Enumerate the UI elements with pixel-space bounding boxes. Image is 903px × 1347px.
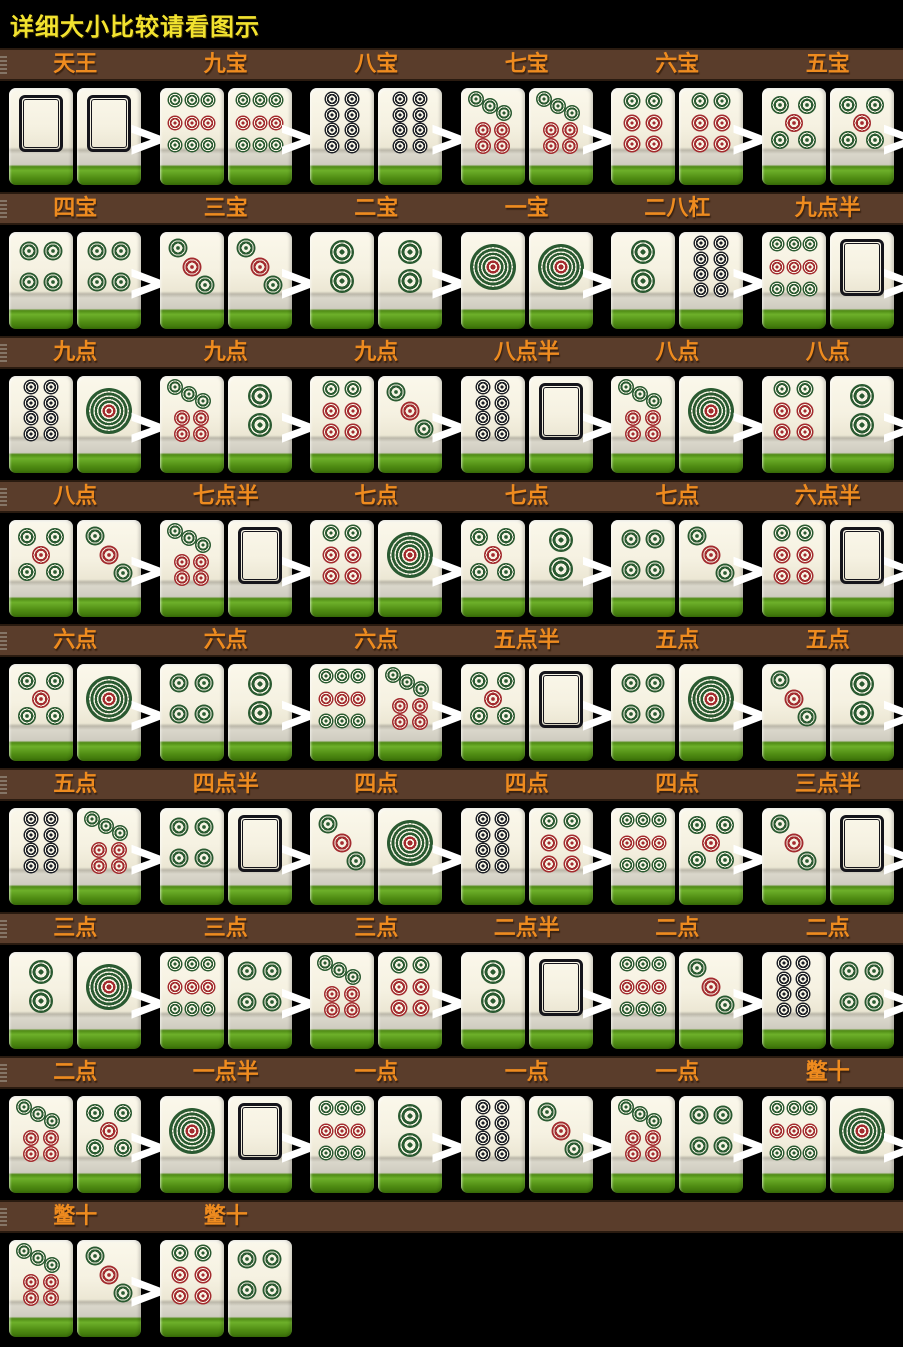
dot: [24, 411, 39, 426]
dot: [691, 135, 708, 152]
greater-than-separator: >: [880, 403, 903, 450]
blank-frame: [840, 239, 884, 296]
rank-header-bar: 三点三点三点二点半二点二点: [0, 912, 903, 945]
tile-row: >>>>>>: [0, 801, 903, 912]
dot: [168, 238, 187, 257]
tile-pair: [160, 1096, 292, 1200]
dot: [652, 957, 667, 972]
dot: [786, 237, 801, 252]
dot: [319, 814, 338, 833]
dot: [345, 525, 362, 542]
tile-face: [163, 379, 221, 442]
blank-frame-inner: [23, 99, 59, 148]
dot: [398, 269, 422, 293]
tile-pair: [9, 232, 141, 336]
dot: [248, 384, 272, 408]
tile-face: [163, 1243, 221, 1306]
pair-cell: >: [753, 952, 903, 1056]
pair-cell: >: [452, 664, 603, 768]
tile-pair: [461, 520, 593, 624]
tile-face: [765, 523, 823, 586]
tile-face: [614, 523, 672, 586]
dot: [262, 1250, 281, 1269]
dot: [475, 1115, 490, 1130]
dot: [774, 381, 791, 398]
dot: [713, 267, 728, 282]
tile-dot-8: [461, 808, 525, 905]
dot: [645, 1146, 661, 1162]
rank-label: 三点: [0, 918, 151, 940]
pair-cell: >: [753, 664, 903, 768]
tile-pair: [160, 664, 292, 768]
rank-label: 七宝: [452, 54, 603, 76]
dot: [351, 1101, 366, 1116]
dot: [646, 393, 662, 409]
dot: [184, 1001, 199, 1016]
dot: [170, 674, 189, 693]
tile-dot-5: [461, 520, 525, 617]
dot: [335, 1123, 350, 1138]
dot: [168, 1001, 183, 1016]
tile-face: [765, 235, 823, 298]
dot: [335, 713, 350, 728]
dot: [43, 395, 58, 410]
dot: [652, 835, 667, 850]
dot: [325, 138, 340, 153]
dot: [322, 546, 339, 563]
tile-dot-9: [762, 1096, 826, 1193]
dot: [636, 857, 651, 872]
dot: [497, 563, 515, 581]
dot: [495, 395, 510, 410]
dot: [475, 426, 490, 441]
dot: [551, 1121, 570, 1140]
greater-than-separator: >: [880, 115, 903, 162]
dot: [322, 423, 339, 440]
tile-dot-7: [9, 1240, 73, 1337]
rank-label: 二点半: [452, 918, 603, 940]
dot: [318, 1123, 333, 1138]
dot: [770, 259, 785, 274]
dot: [325, 107, 340, 122]
dot: [796, 987, 811, 1002]
rank-section: 天王九宝八宝七宝六宝五宝>>>>>>: [0, 48, 903, 192]
tile-pair: [9, 808, 141, 912]
dot: [24, 827, 39, 842]
dot: [786, 1123, 801, 1138]
pair-cell: >: [602, 376, 753, 480]
dot: [23, 1146, 39, 1162]
rank-label: 六点半: [753, 486, 903, 508]
dot: [351, 713, 366, 728]
dot: [200, 957, 215, 972]
pair-cell: >: [301, 808, 452, 912]
dot: [100, 1265, 119, 1284]
pair-cell: >: [753, 520, 903, 624]
greater-than-separator: >: [880, 691, 903, 738]
dot: [786, 281, 801, 296]
rank-label: 一点半: [151, 1062, 302, 1084]
dot: [393, 138, 408, 153]
rank-label: 五宝: [753, 54, 903, 76]
greater-than-separator: >: [880, 259, 903, 306]
dot: [111, 842, 127, 858]
tile-dot-2: [310, 232, 374, 329]
tile-dot-4: [9, 232, 73, 329]
dot: [543, 138, 559, 154]
tile-dot-8: [9, 808, 73, 905]
dot: [248, 413, 272, 437]
tile-pair: [762, 520, 894, 624]
rank-section: 四宝三宝二宝一宝二八杠九点半>>>>>>: [0, 192, 903, 336]
tile-face: [12, 667, 70, 730]
dot: [541, 855, 558, 872]
dot: [236, 93, 251, 108]
dot: [631, 240, 655, 264]
dot-big: [86, 676, 132, 722]
dot: [172, 1245, 189, 1262]
dot: [774, 402, 791, 419]
dot: [562, 122, 578, 138]
tile-face: [163, 955, 221, 1018]
pair-cell: >: [0, 520, 151, 624]
dot: [398, 1133, 422, 1157]
dot: [393, 123, 408, 138]
dot: [646, 530, 665, 549]
tile-dot-8: [762, 952, 826, 1049]
dot: [194, 704, 213, 723]
blank-frame-inner: [543, 963, 579, 1012]
dot: [86, 526, 105, 545]
dot: [475, 1146, 490, 1161]
dot: [184, 957, 199, 972]
dot: [32, 690, 50, 708]
dot: [784, 689, 803, 708]
dot-big: [169, 1108, 215, 1154]
dot: [322, 381, 339, 398]
dot: [86, 1104, 104, 1122]
tile-face: [313, 667, 371, 730]
dot: [193, 410, 209, 426]
rank-section: 二点一点半一点一点一点鳖十>>>>>>: [0, 1056, 903, 1200]
dot: [785, 114, 803, 132]
dot: [484, 690, 502, 708]
dot: [168, 93, 183, 108]
tile-pair: [611, 376, 743, 480]
dot: [625, 1130, 641, 1146]
dot: [802, 237, 817, 252]
dot: [193, 426, 209, 442]
dot: [43, 380, 58, 395]
dot: [390, 978, 407, 995]
pair-cell: >: [602, 88, 753, 192]
tile-row: >>>>>>: [0, 657, 903, 768]
tile-face: [464, 523, 522, 586]
pair-cell: >: [602, 520, 753, 624]
dot: [268, 93, 283, 108]
blank-frame: [539, 383, 583, 440]
dot: [195, 393, 211, 409]
dot: [494, 138, 510, 154]
dot: [174, 426, 190, 442]
dot: [563, 834, 580, 851]
rank-label: 七点: [602, 486, 753, 508]
dot: [625, 1146, 641, 1162]
tile-pair: [160, 88, 292, 192]
dot: [495, 1115, 510, 1130]
tile-dot-9: [310, 664, 374, 761]
rank-label: 六点: [301, 630, 452, 652]
pair-cell: >: [753, 88, 903, 192]
dot: [621, 530, 640, 549]
dot: [344, 123, 359, 138]
rank-label: 一点: [301, 1062, 452, 1084]
rank-section: 六点六点六点五点半五点五点>>>>>>: [0, 624, 903, 768]
tile-dot-2: [461, 952, 525, 1049]
dot: [24, 812, 39, 827]
dot: [43, 843, 58, 858]
tile-pair: [9, 1240, 141, 1344]
blank-frame-inner: [844, 243, 880, 292]
dot: [91, 858, 107, 874]
rank-label: 三点: [301, 918, 452, 940]
tile-face: [163, 235, 221, 298]
dot: [636, 835, 651, 850]
dot: [24, 395, 39, 410]
dot: [86, 1246, 105, 1265]
dot: [19, 272, 38, 291]
dot: [184, 93, 199, 108]
rank-label: 六点: [151, 630, 302, 652]
dot: [495, 411, 510, 426]
dot: [346, 852, 365, 871]
dot: [194, 848, 213, 867]
rank-label: 鳖十: [753, 1062, 903, 1084]
tile-dot-9: [160, 952, 224, 1049]
dot: [646, 1113, 662, 1129]
rank-section: 五点四点半四点四点四点三点半>>>>>>: [0, 768, 903, 912]
dot: [776, 987, 791, 1002]
dot: [248, 701, 272, 725]
rank-label: 五点: [602, 630, 753, 652]
tile-row: >>>>>>: [0, 513, 903, 624]
tile-dot-9: [160, 88, 224, 185]
dot: [401, 401, 420, 420]
dot: [645, 426, 661, 442]
tile-dot-3: [310, 808, 374, 905]
tile-dot-4: [160, 664, 224, 761]
dot: [802, 1101, 817, 1116]
dot: [770, 1123, 785, 1138]
dot: [652, 857, 667, 872]
rank-label: 一宝: [452, 198, 603, 220]
dot: [564, 105, 580, 121]
tile-pair: [611, 664, 743, 768]
tile-face: [765, 955, 823, 1018]
rank-label: 八宝: [301, 54, 452, 76]
dot: [796, 971, 811, 986]
dot: [694, 267, 709, 282]
tile-face: [464, 91, 522, 154]
rank-section: 八点七点半七点七点七点六点半>>>>>>: [0, 480, 903, 624]
tile-pair: [160, 952, 292, 1056]
dot: [100, 545, 119, 564]
dot: [194, 1245, 211, 1262]
dot: [796, 1002, 811, 1017]
dot: [325, 123, 340, 138]
tile-pair: [762, 88, 894, 192]
blank-frame-inner: [543, 387, 579, 436]
tile-face: [765, 667, 823, 730]
dot: [200, 137, 215, 152]
rank-label: 八点半: [452, 342, 603, 364]
dot: [645, 1130, 661, 1146]
dot: [475, 858, 490, 873]
dot: [694, 251, 709, 266]
dot: [623, 93, 640, 110]
dot: [631, 269, 655, 293]
dot: [112, 825, 128, 841]
dot: [351, 691, 366, 706]
tile-pair: [762, 664, 894, 768]
dot: [46, 563, 64, 581]
dot: [24, 380, 39, 395]
tile-dot-5: [9, 664, 73, 761]
dot: [325, 92, 340, 107]
tile-dot-9: [611, 808, 675, 905]
dot: [796, 423, 813, 440]
pair-cell: >: [151, 88, 302, 192]
tile-face: [765, 91, 823, 154]
pair-cell: >: [301, 520, 452, 624]
dot: [318, 713, 333, 728]
dot: [481, 989, 505, 1013]
dot: [318, 691, 333, 706]
dot: [475, 812, 490, 827]
blank-frame: [539, 671, 583, 728]
dot: [194, 1266, 211, 1283]
dot: [688, 816, 706, 834]
dot: [412, 107, 427, 122]
pair-cell: >: [0, 232, 151, 336]
tile-dot-4: [611, 520, 675, 617]
dot: [324, 1002, 340, 1018]
tile-dot-6: [611, 88, 675, 185]
blank-frame: [539, 959, 583, 1016]
tile-face: [163, 811, 221, 874]
dot: [495, 426, 510, 441]
tile-pair: [461, 88, 593, 192]
tile-face: [12, 1243, 70, 1306]
dot: [412, 714, 428, 730]
pair-cell: >: [602, 232, 753, 336]
dot: [344, 986, 360, 1002]
dot: [330, 269, 354, 293]
dot: [646, 560, 665, 579]
dot: [541, 834, 558, 851]
dot: [770, 1101, 785, 1116]
tile-dot-5: [461, 664, 525, 761]
pair-cell: >: [452, 88, 603, 192]
dot: [646, 704, 665, 723]
dot: [776, 1002, 791, 1017]
tile-pair: [461, 808, 593, 912]
dot: [623, 114, 640, 131]
dot: [345, 402, 362, 419]
dot: [853, 114, 871, 132]
pair-cell: >: [452, 1096, 603, 1200]
tile-face: [464, 1099, 522, 1162]
tile-face: [313, 379, 371, 442]
tile-face: [313, 811, 371, 874]
dot: [689, 1106, 708, 1125]
dot: [475, 1100, 490, 1115]
dot: [691, 93, 708, 110]
dot: [702, 834, 720, 852]
dot: [86, 1139, 104, 1157]
pair-cell: >: [301, 664, 452, 768]
dot: [497, 528, 515, 546]
blank-frame: [238, 815, 282, 872]
dot: [324, 986, 340, 1002]
tile-pair: [762, 1096, 894, 1200]
dot: [318, 1101, 333, 1116]
dot: [18, 707, 36, 725]
dot: [776, 971, 791, 986]
dot: [318, 669, 333, 684]
dot: [470, 563, 488, 581]
dot: [322, 402, 339, 419]
dot: [563, 855, 580, 872]
tile-face: [163, 667, 221, 730]
dot: [543, 122, 559, 138]
dot: [470, 707, 488, 725]
dot: [495, 858, 510, 873]
dot-big: [688, 388, 734, 434]
tile-dot-7: [461, 88, 525, 185]
dot: [195, 537, 211, 553]
blank-frame-inner: [91, 99, 127, 148]
dot: [798, 131, 816, 149]
tile-face: [12, 955, 70, 1018]
dot: [170, 848, 189, 867]
tile-pair: [160, 1240, 292, 1344]
tile-pair: [160, 808, 292, 912]
blank-frame-inner: [242, 531, 278, 580]
tile-face: [313, 235, 371, 298]
dot: [344, 92, 359, 107]
dot: [413, 681, 429, 697]
rank-label: 九点半: [753, 198, 903, 220]
tile-face: [163, 91, 221, 154]
tile-dot-7: [310, 952, 374, 1049]
dot: [43, 1290, 59, 1306]
dot: [619, 835, 634, 850]
tile-dot-7: [611, 1096, 675, 1193]
dot: [194, 1287, 211, 1304]
tile-dot-6: [310, 376, 374, 473]
dot: [475, 827, 490, 842]
pair-cell: >: [301, 1096, 452, 1200]
rank-label: 六点: [0, 630, 151, 652]
dot: [194, 674, 213, 693]
rank-label: 七点: [301, 486, 452, 508]
dot: [344, 1002, 360, 1018]
dot: [200, 115, 215, 130]
tile-pair: [9, 1096, 141, 1200]
tile-face: [765, 1099, 823, 1162]
dot: [18, 528, 36, 546]
